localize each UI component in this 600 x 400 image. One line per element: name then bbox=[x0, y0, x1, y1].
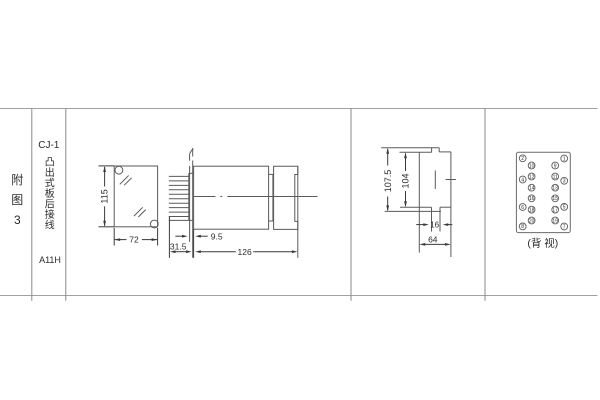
svg-text:CJ-1: CJ-1 bbox=[38, 140, 60, 151]
svg-text:式: 式 bbox=[45, 177, 55, 190]
svg-text:3: 3 bbox=[14, 213, 21, 227]
svg-text:后: 后 bbox=[45, 199, 55, 211]
svg-text:附: 附 bbox=[11, 173, 23, 187]
svg-text:126: 126 bbox=[238, 247, 252, 257]
svg-text:板: 板 bbox=[45, 187, 55, 200]
svg-text:13: 13 bbox=[552, 186, 558, 192]
svg-text:6: 6 bbox=[521, 205, 524, 211]
svg-text:1: 1 bbox=[563, 156, 566, 162]
svg-text:20: 20 bbox=[529, 218, 535, 224]
svg-text:8: 8 bbox=[521, 224, 524, 230]
svg-text:16: 16 bbox=[430, 221, 439, 230]
svg-text:31.5: 31.5 bbox=[170, 241, 187, 251]
svg-text:16: 16 bbox=[529, 196, 535, 202]
svg-text:12: 12 bbox=[529, 174, 535, 180]
svg-text:2: 2 bbox=[521, 156, 524, 162]
svg-text:3: 3 bbox=[563, 179, 566, 185]
svg-text:107.5: 107.5 bbox=[383, 170, 393, 193]
svg-text:5: 5 bbox=[563, 205, 566, 211]
svg-text:14: 14 bbox=[529, 186, 535, 192]
svg-text:线: 线 bbox=[45, 219, 55, 232]
svg-text:4: 4 bbox=[521, 177, 524, 183]
svg-text:7: 7 bbox=[563, 224, 566, 230]
svg-text:17: 17 bbox=[552, 207, 558, 213]
svg-text:18: 18 bbox=[529, 207, 535, 213]
svg-text:接: 接 bbox=[45, 208, 55, 221]
svg-text:15: 15 bbox=[552, 196, 558, 202]
svg-text:11: 11 bbox=[553, 174, 558, 180]
svg-text:9.5: 9.5 bbox=[211, 231, 223, 241]
svg-text:72: 72 bbox=[129, 235, 139, 245]
svg-text:凸: 凸 bbox=[45, 157, 55, 169]
svg-text:出: 出 bbox=[45, 166, 55, 179]
svg-text:(背 视): (背 视) bbox=[527, 237, 558, 250]
svg-text:A11H: A11H bbox=[39, 255, 61, 265]
svg-text:图: 图 bbox=[11, 193, 23, 207]
svg-text:64: 64 bbox=[428, 234, 438, 244]
svg-text:104: 104 bbox=[401, 173, 411, 188]
svg-text:9: 9 bbox=[554, 163, 557, 169]
svg-text:19: 19 bbox=[552, 218, 558, 224]
svg-text:115: 115 bbox=[100, 189, 110, 203]
svg-text:10: 10 bbox=[529, 163, 535, 169]
